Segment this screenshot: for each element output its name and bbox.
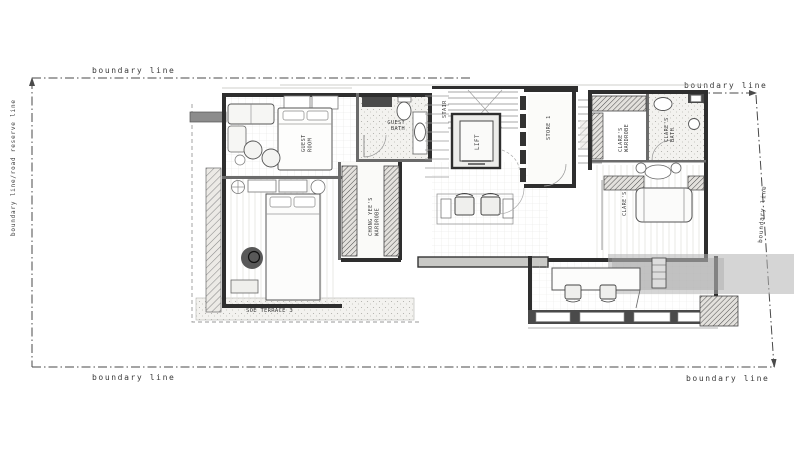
store-room: STORE 1 [528,94,572,186]
guest-bed-pillow [283,111,304,120]
clares-room-label: CLARE'S [622,191,628,216]
guest-armchair [262,149,280,167]
floor-plan-canvas: boundary line boundary line boundary lin… [0,0,800,475]
guest-chaise [228,126,246,152]
guest-room-label-line2: ROOM [308,138,314,152]
boundary-label-bottom-left: boundary line [92,373,175,382]
chong-yee-wardrobe-label-line1: CHONG YEE'S [368,197,374,236]
clares-wardrobe-label: CLARE'S WARDROBE [618,124,630,152]
clares-bed [636,188,692,222]
clares-wardrobe-label-line2: WARDROBE [624,124,630,152]
master-bed [266,194,320,300]
sill-hatch [688,176,704,190]
master-bed-pillow [294,197,315,207]
small-table [645,165,671,179]
wardrobe-hatch-band [592,96,646,111]
counter-basin [691,96,701,102]
center-core: STAIR LIFT STORE 1 [418,86,602,267]
stool [671,163,681,173]
dresser [279,180,307,192]
clares-wardrobe: CLARE'S WARDROBE [592,96,646,159]
window [634,313,670,322]
dresser [312,96,338,109]
stool [636,163,646,173]
segmented-wall [520,96,526,182]
boundary-label-top-right: boundary line [684,81,767,90]
side-table [441,199,451,218]
desk-chair [600,285,616,299]
dresser [248,180,276,192]
lift-label: LIFT [475,134,481,150]
window [536,313,570,322]
stair-label: STAIR [442,100,448,118]
shelf-unit [652,258,666,288]
boundary-label-bottom-right: boundary line [686,374,769,383]
basin [415,123,426,141]
store-label: STORE 1 [546,115,552,140]
floor-plan-drawing: boundary line boundary line boundary lin… [0,0,800,475]
sill-hatch [604,176,644,190]
guest-armchair [244,141,262,159]
wardrobe-closet-right [384,166,399,256]
guest-bath-label-line2: BATH [391,126,405,132]
side-table [235,155,245,165]
wardrobe-closet-left [342,166,357,256]
bench [231,280,258,293]
canopy-bar [190,112,226,122]
window [580,313,624,322]
left-wing: GUEST ROOM [222,93,432,308]
landing-chair [455,197,474,215]
study-terrace [528,254,794,328]
desk-chair [565,285,581,299]
wc-tank [398,97,411,102]
boundary-label-left-vertical: boundary line/road reserve line [10,99,17,236]
wc-toilet [397,102,411,120]
side-table [503,199,513,218]
chong-yee-wardrobe-label-line2: WARDROBE [375,208,381,236]
guest-bed-pillow [307,111,328,120]
garden-step-hatch [700,296,738,326]
bath-counter-dark [362,97,392,107]
guest-room-label-line1: GUEST [301,134,307,152]
pendant-light [311,180,325,194]
guest-bath: GUEST BATH [359,97,428,159]
wardrobe-hatch-side [592,113,603,159]
boundary-label-top-left: boundary line [92,66,175,75]
dresser [284,96,310,109]
planter-hatch [206,168,221,312]
terrace-label: SOE TERRACE 3 [246,308,293,314]
clares-bath-label-line2: BATH [670,128,676,142]
master-bed-pillow [270,197,291,207]
landing-chair [481,197,500,215]
wc-toilet [654,98,672,111]
window-band [528,310,718,328]
boundary-label-right-slanted: boundary line [757,185,768,243]
basin [689,119,700,130]
clares-bath: CLARE'S BATH [649,94,704,160]
